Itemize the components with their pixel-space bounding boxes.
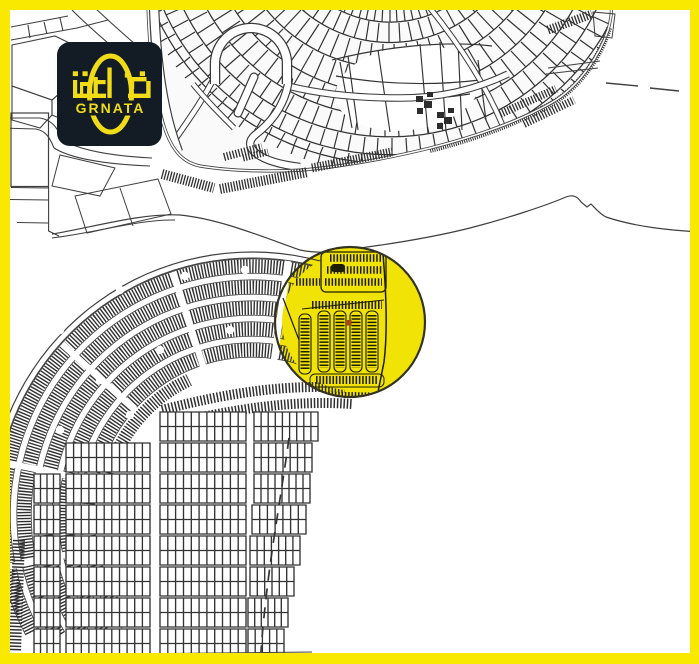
- svg-text:GRNATA: GRNATA: [76, 100, 146, 116]
